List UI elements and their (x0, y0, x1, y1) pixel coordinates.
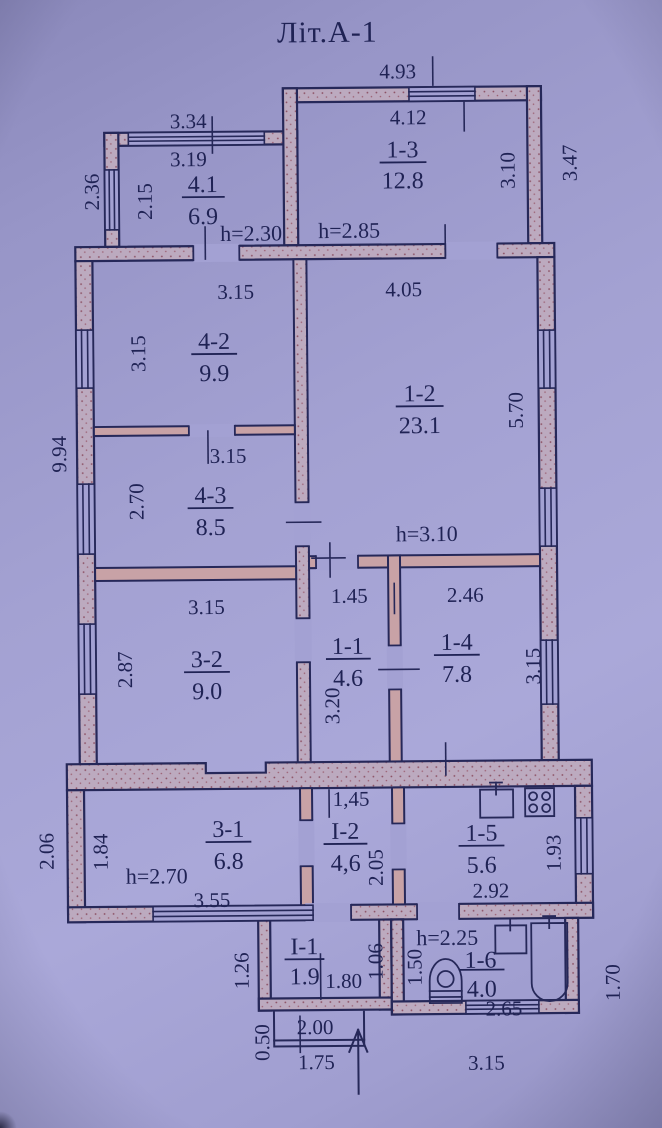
photo-corner-shadow (0, 988, 140, 1128)
floorplan-svg: Літ.А-1 4.93 4.12 1-3 12.8 3.10 3.47 h=2… (0, 0, 662, 1128)
photo-vignette (0, 0, 662, 1128)
floorplan-photo: Літ.А-1 4.93 4.12 1-3 12.8 3.10 3.47 h=2… (0, 0, 662, 1128)
